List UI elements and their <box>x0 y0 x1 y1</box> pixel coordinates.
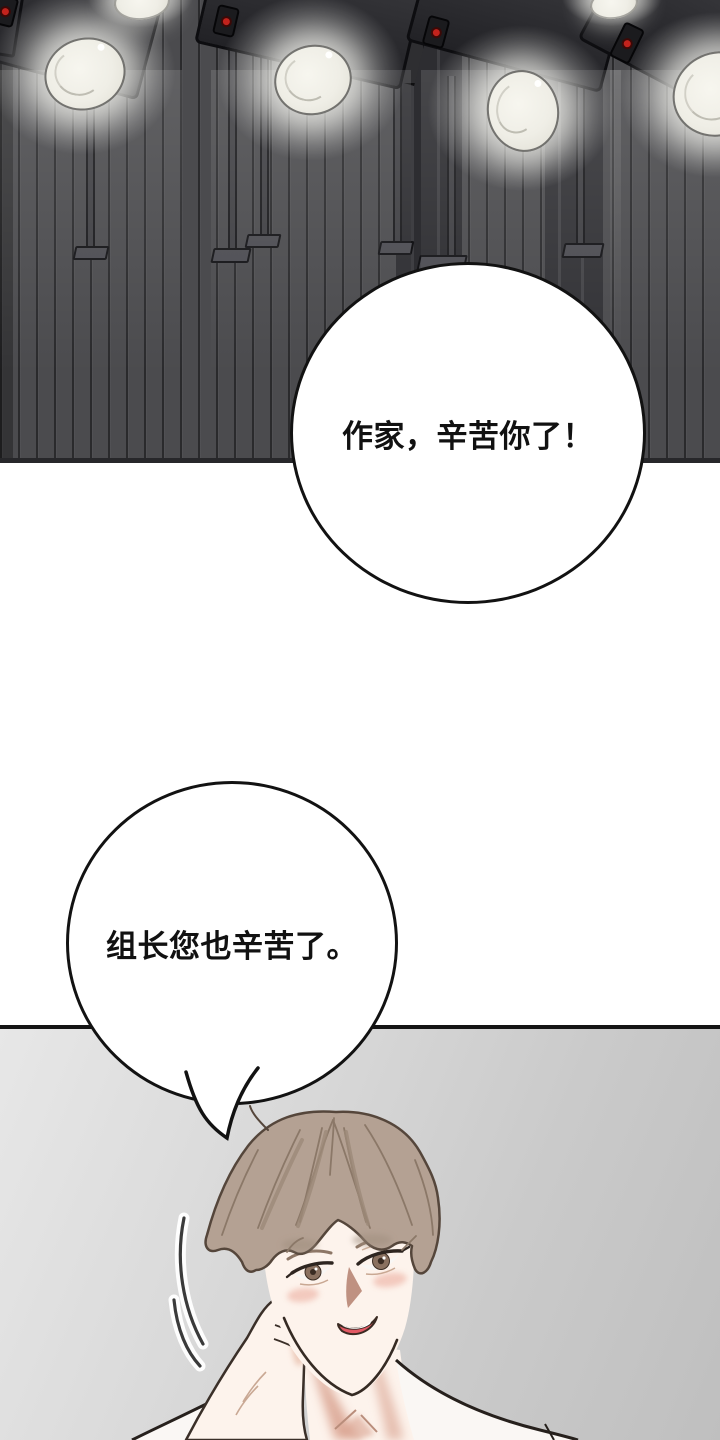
speech-bubble-bottom: 组长您也辛苦了。 <box>66 781 398 1105</box>
backdrop-gray <box>0 1029 720 1440</box>
hanging-rod <box>260 50 269 235</box>
speech-bubble-bottom-text: 组长您也辛苦了。 <box>106 921 358 966</box>
hanging-rod <box>393 66 402 242</box>
rod-cap <box>245 234 282 248</box>
hanging-rod <box>86 88 95 246</box>
rod-cap <box>210 248 251 263</box>
hanging-rod <box>447 76 456 256</box>
speech-bubble-top-text: 作家，辛苦你了！ <box>342 411 594 456</box>
rod-cap <box>378 241 415 255</box>
rod-cap <box>561 243 604 258</box>
rod-cap <box>73 246 110 260</box>
webtoon-panel: 作家，辛苦你了！ 组长您也辛苦了。 <box>0 0 720 1440</box>
hanging-rod <box>228 34 237 248</box>
wall-edge-shadow <box>0 0 13 463</box>
speech-bubble-top: 作家，辛苦你了！ <box>290 262 646 604</box>
